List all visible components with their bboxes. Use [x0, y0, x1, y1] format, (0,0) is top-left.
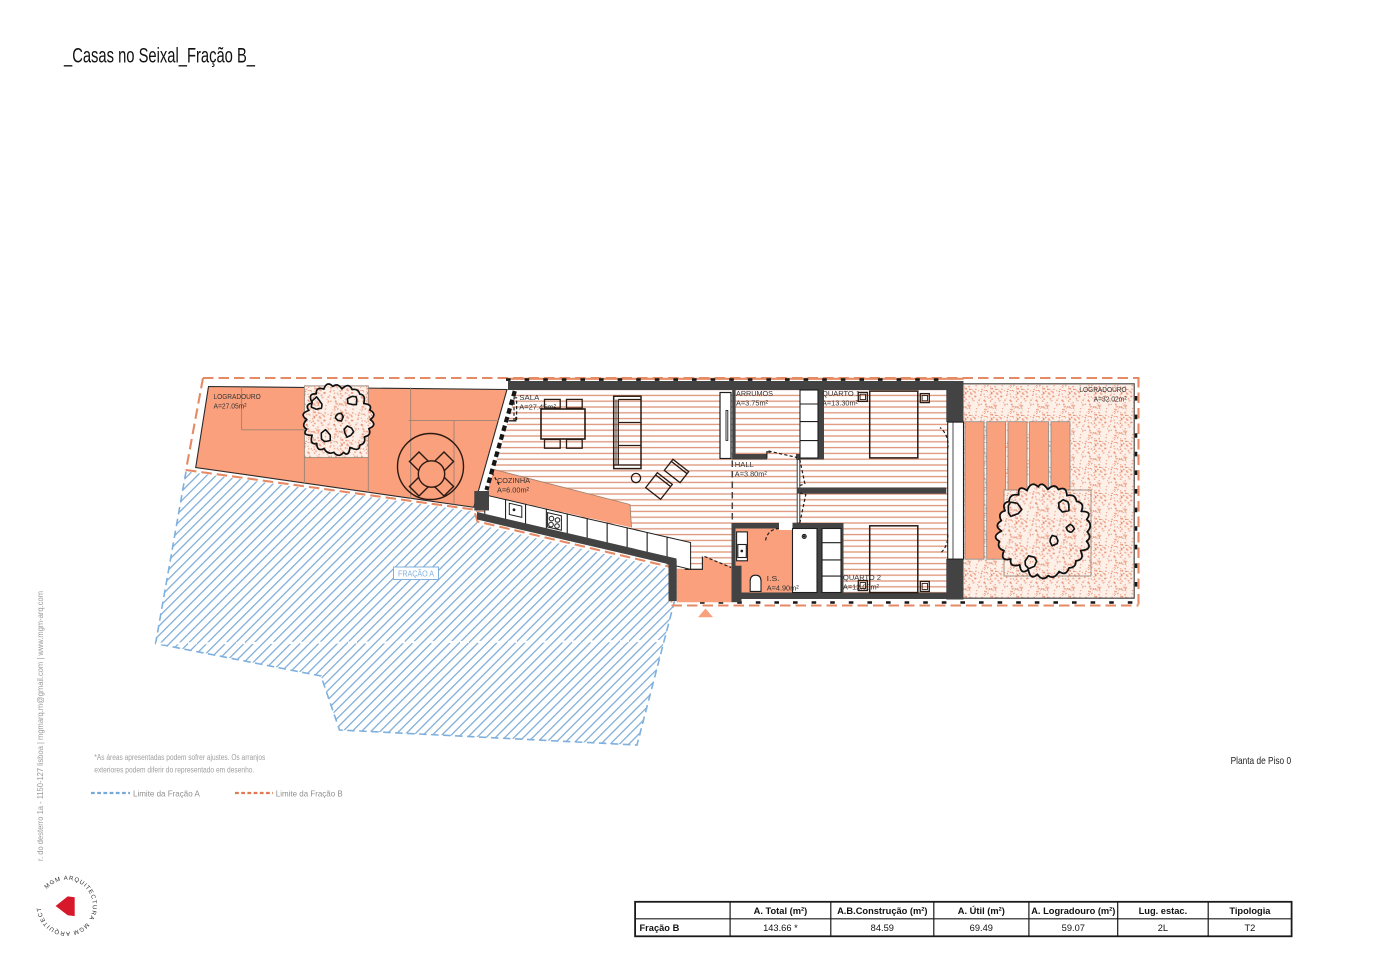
- svg-text:I.S.: I.S.: [767, 574, 780, 583]
- svg-text:A=4.90m²: A=4.90m²: [767, 584, 799, 593]
- svg-text:r. do desterro 1a - 1150-127 l: r. do desterro 1a - 1150-127 lisboa | mg…: [35, 591, 45, 861]
- svg-text:QUARTO 2: QUARTO 2: [843, 573, 881, 582]
- svg-text:Tipologia: Tipologia: [1229, 906, 1271, 916]
- svg-text:Limite da Fração A: Limite da Fração A: [133, 789, 200, 799]
- svg-text:T2: T2: [1244, 923, 1255, 933]
- svg-text:A=27.05m²: A=27.05m²: [214, 402, 247, 411]
- svg-text:exteriores podem diferir do re: exteriores podem diferir do representado…: [94, 765, 254, 774]
- svg-text:2L: 2L: [1158, 923, 1168, 933]
- svg-text:Fração B: Fração B: [640, 923, 680, 933]
- svg-text:LOGRADOURO: LOGRADOURO: [214, 392, 261, 401]
- svg-text:LOGRADOURO: LOGRADOURO: [1079, 385, 1126, 394]
- svg-text:A=12.00m²: A=12.00m²: [843, 583, 879, 592]
- svg-text:A.B.Construção (m²): A.B.Construção (m²): [837, 906, 927, 916]
- svg-text:A=27.45m²: A=27.45m²: [519, 403, 556, 412]
- svg-text:A=3.80m²: A=3.80m²: [735, 470, 767, 479]
- svg-text:A=32.02m²: A=32.02m²: [1094, 395, 1127, 404]
- svg-text:Planta de Piso 0: Planta de Piso 0: [1231, 755, 1292, 767]
- svg-text:A. Logradouro (m²): A. Logradouro (m²): [1031, 906, 1115, 916]
- svg-text:FRAÇÃO A: FRAÇÃO A: [398, 570, 435, 579]
- svg-text:COZINHA: COZINHA: [497, 476, 531, 485]
- svg-text:QUARTO 1: QUARTO 1: [822, 389, 860, 398]
- svg-text:A=3.75m²: A=3.75m²: [736, 399, 768, 408]
- svg-text:A=13.30m²: A=13.30m²: [822, 399, 858, 408]
- svg-text:143.66 *: 143.66 *: [763, 923, 798, 933]
- svg-text:A=6.00m²: A=6.00m²: [497, 486, 529, 495]
- svg-text:A. Útil (m²): A. Útil (m²): [958, 905, 1005, 916]
- svg-text:SALA: SALA: [519, 393, 540, 402]
- svg-text:ARRUMOS: ARRUMOS: [736, 389, 773, 398]
- svg-text:*As áreas apresentadas podem s: *As áreas apresentadas podem sofrer ajus…: [94, 753, 265, 762]
- svg-text:Lug. estac.: Lug. estac.: [1139, 906, 1188, 916]
- svg-text:HALL: HALL: [735, 460, 754, 469]
- svg-text:_Casas no Seixal_Fração B_: _Casas no Seixal_Fração B_: [63, 45, 255, 68]
- svg-text:Limite da Fração B: Limite da Fração B: [276, 789, 343, 799]
- svg-text:84.59: 84.59: [871, 923, 894, 933]
- svg-text:A. Total (m²): A. Total (m²): [754, 906, 808, 916]
- svg-text:69.49: 69.49: [970, 923, 993, 933]
- svg-text:59.07: 59.07: [1062, 923, 1085, 933]
